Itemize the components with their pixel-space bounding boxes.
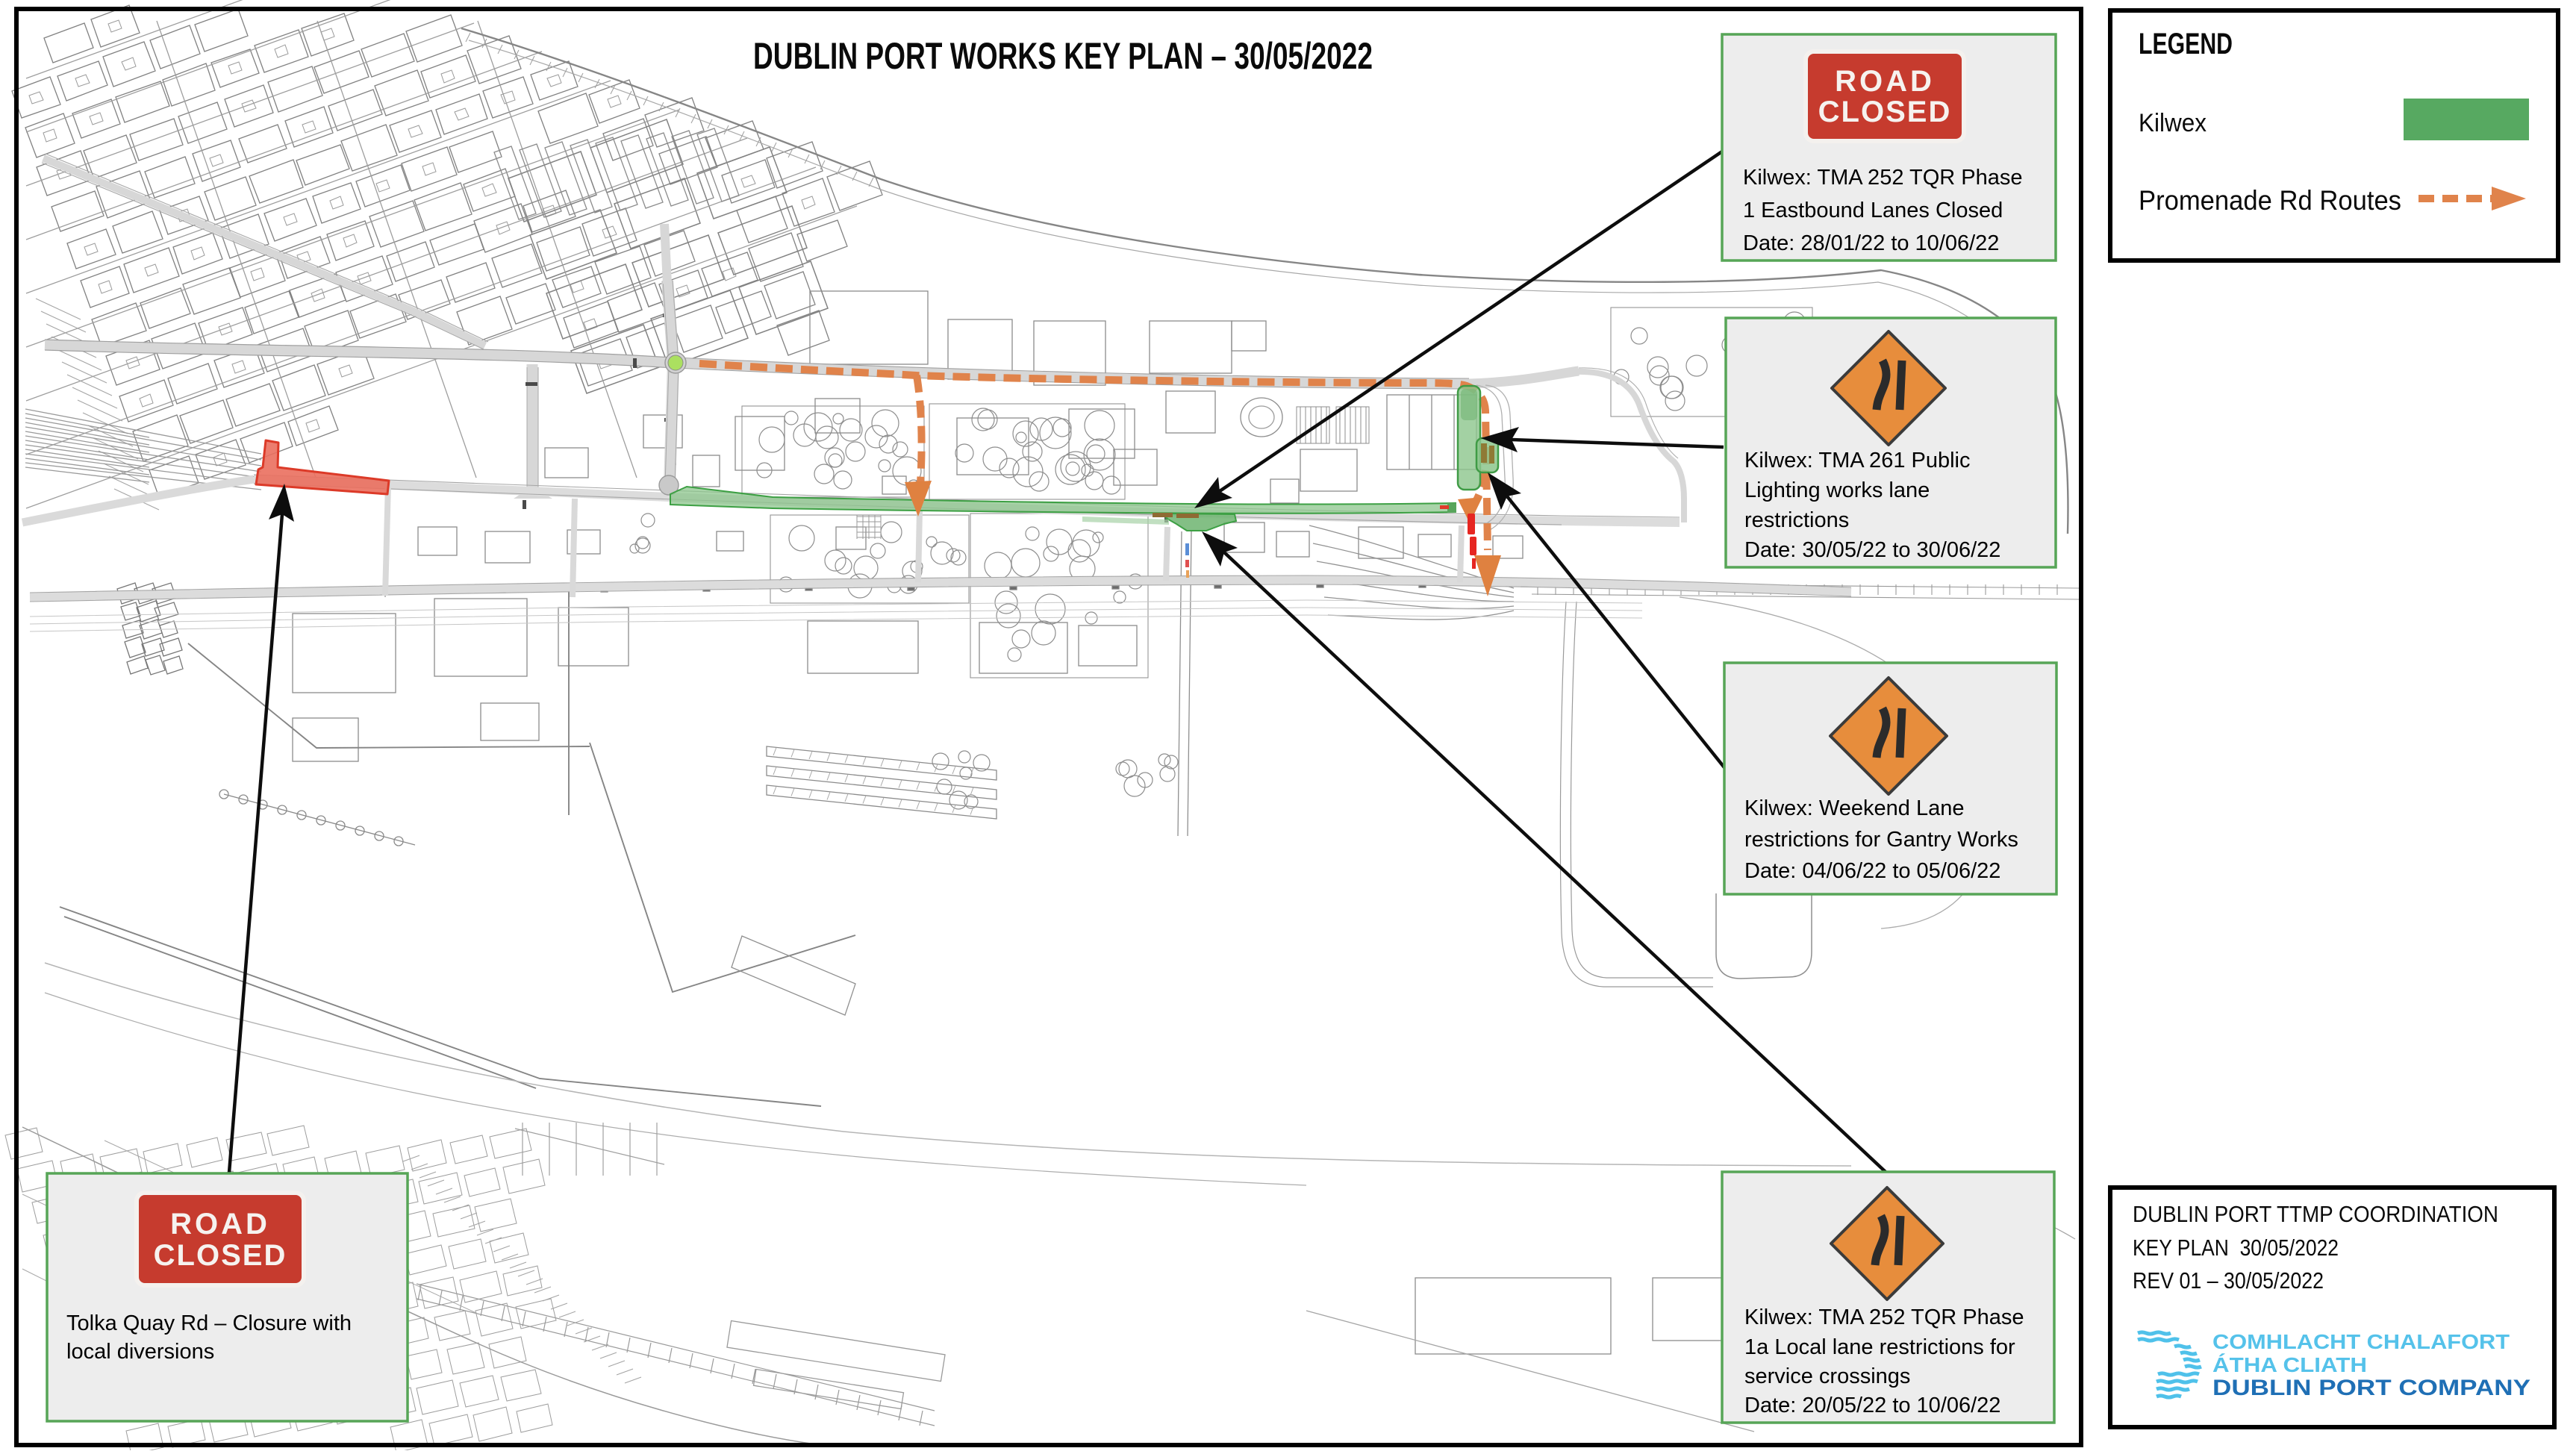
svg-text:ROAD: ROAD [1835,65,1935,98]
svg-text:LEGEND: LEGEND [2139,28,2233,60]
svg-text:Kilwex: TMA 252 TQR Phase: Kilwex: TMA 252 TQR Phase [1743,166,2022,190]
svg-text:Date: 20/05/22 to 10/06/22: Date: 20/05/22 to 10/06/22 [1744,1394,2000,1417]
svg-text:service crossings: service crossings [1744,1364,1910,1388]
svg-text:Kilwex: TMA 252 TQR Phase: Kilwex: TMA 252 TQR Phase [1744,1305,2024,1329]
svg-text:Tolka Quay Rd – Closure with: Tolka Quay Rd – Closure with [66,1311,352,1335]
svg-text:CLOSED: CLOSED [154,1239,287,1272]
svg-text:Date: 30/05/22 to 30/06/22: Date: 30/05/22 to 30/06/22 [1744,538,2000,562]
svg-text:restrictions: restrictions [1744,508,1849,532]
svg-text:local diversions: local diversions [66,1340,214,1364]
svg-text:1 Eastbound Lanes Closed: 1 Eastbound Lanes Closed [1743,199,2003,222]
svg-text:DUBLIN PORT COMPANY: DUBLIN PORT COMPANY [2212,1376,2530,1400]
svg-text:KEY PLAN 30/05/2022: KEY PLAN 30/05/2022 [2133,1235,2339,1261]
svg-text:Kilwex: TMA 261 Public: Kilwex: TMA 261 Public [1744,449,1971,472]
svg-text:ÁTHA CLIATH: ÁTHA CLIATH [2212,1353,2367,1376]
svg-text:COMHLACHT CHALAFORT: COMHLACHT CHALAFORT [2212,1330,2510,1353]
svg-text:ROAD: ROAD [170,1208,270,1241]
svg-text:Lighting works lane: Lighting works lane [1744,478,1930,502]
svg-text:Date: 28/01/22 to 10/06/22: Date: 28/01/22 to 10/06/22 [1743,231,1999,255]
svg-text:DUBLIN PORT TTMP COORDINATION: DUBLIN PORT TTMP COORDINATION [2133,1201,2498,1227]
svg-text:Kilwex: Weekend Lane: Kilwex: Weekend Lane [1744,796,1964,820]
svg-text:Kilwex: Kilwex [2139,109,2207,137]
svg-text:Date: 04/06/22 to 05/06/22: Date: 04/06/22 to 05/06/22 [1744,859,2000,883]
svg-text:Promenade Rd Routes: Promenade Rd Routes [2139,185,2401,216]
svg-text:restrictions for Gantry Works: restrictions for Gantry Works [1744,828,2018,852]
svg-text:DUBLIN PORT WORKS KEY PLAN – 3: DUBLIN PORT WORKS KEY PLAN – 30/05/2022 [753,35,1373,77]
svg-text:CLOSED: CLOSED [1818,96,1952,128]
svg-text:1a Local lane restrictions for: 1a Local lane restrictions for [1744,1335,2015,1359]
svg-text:REV 01 – 30/05/2022: REV 01 – 30/05/2022 [2133,1267,2324,1294]
